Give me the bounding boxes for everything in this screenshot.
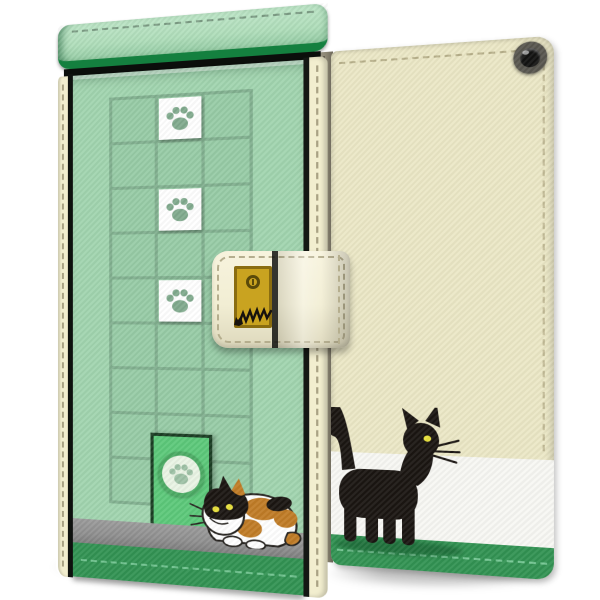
black-cat-illustration — [331, 404, 461, 565]
belt-wrap-edge — [278, 251, 350, 348]
cat-scratch-icon — [231, 303, 273, 327]
left-fore-edge — [56, 76, 68, 577]
keyhole-charm — [234, 266, 272, 328]
stitch-line — [543, 53, 545, 451]
paw-icon — [164, 193, 196, 225]
paw-tile — [159, 188, 202, 231]
keyhole-icon — [246, 275, 260, 289]
stitch-line — [81, 559, 297, 578]
paw-icon — [164, 285, 196, 316]
clasp-belt — [212, 251, 350, 348]
stitch-line — [72, 11, 314, 33]
back-face — [331, 36, 554, 581]
paw-icon — [164, 102, 196, 135]
stitch-line — [339, 48, 540, 64]
stitch-line — [62, 84, 64, 566]
keyhole-slot — [252, 279, 254, 285]
product-photo — [0, 0, 600, 600]
paw-tile — [159, 280, 202, 322]
calico-cat-illustration — [189, 461, 304, 552]
paw-tile — [159, 96, 202, 140]
